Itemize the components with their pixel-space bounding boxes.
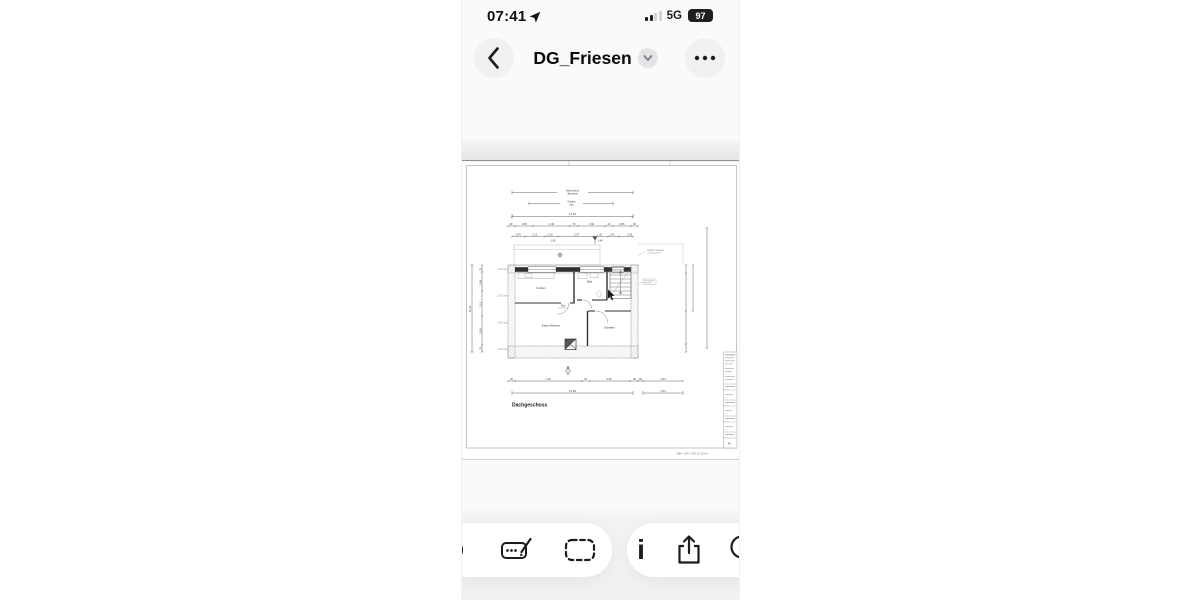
nav-bar: DG_Friesen [462,36,739,82]
status-right-cluster: 5G 97 [645,9,713,22]
paper-size-note: MB = 297 / 420 (0.12m²) [677,452,708,456]
svg-text:2.84: 2.84 [478,279,482,285]
network-type: 5G [667,10,682,22]
svg-text:73: 73 [478,347,482,350]
svg-text:30: 30 [510,377,513,381]
dim-overall-top: 12.48 [569,212,576,216]
svg-text:73: 73 [478,268,482,271]
svg-text:70: 70 [584,377,587,381]
clipped-circle-icon[interactable] [461,533,482,567]
svg-text:7.16: 7.16 [545,377,551,381]
svg-text:30: 30 [633,222,636,226]
svg-text:30: 30 [633,377,636,381]
svg-text:2.00 Linie: 2.00 Linie [497,295,508,298]
document-title-group: DG_Friesen [533,38,657,78]
annotation-garage: Auffahrt Garage [647,249,665,252]
battery-indicator: 97 [688,9,713,22]
room-label-bath: Bad [587,280,592,284]
info-icon[interactable]: i [624,533,658,567]
dim-overall-bottom: 12.48 [569,389,576,393]
room-label-bedroom: Schlafen [604,326,615,330]
svg-text:1.00 Linie: 1.00 Linie [497,268,508,271]
svg-text:2.27: 2.27 [574,232,580,236]
back-button[interactable] [474,38,514,78]
svg-text:2.84: 2.84 [478,328,482,334]
svg-text:1.13: 1.13 [532,232,538,236]
svg-text:1.64: 1.64 [515,232,521,236]
chevron-left-icon [485,45,503,71]
svg-text:i: i [637,534,645,565]
svg-text:1.00 Linie: 1.00 Linie [497,348,508,351]
drawing-title: Dachgeschoss [512,403,548,409]
svg-text:2.20: 2.20 [547,232,553,236]
ellipsis-icon [694,55,716,61]
span-label-outer-2: Bestand [568,192,578,196]
cellular-signal-icon [645,10,662,21]
location-arrow-icon [529,11,541,23]
svg-text:24: 24 [608,222,611,226]
svg-text:2.13: 2.13 [478,301,482,307]
search-icon[interactable] [727,533,740,567]
svg-text:3.90: 3.90 [589,222,595,226]
svg-text:30: 30 [510,222,513,226]
svg-text:70: 70 [573,222,576,226]
svg-text:4.54: 4.54 [660,377,666,381]
phone-screen: 07:41 5G 97 DG_Friesen [461,0,740,600]
svg-text:1.90: 1.90 [550,238,556,242]
svg-text:2.36: 2.36 [627,232,633,236]
chevron-down-icon [642,52,654,64]
svg-text:1.42: 1.42 [609,232,615,236]
svg-text:1.40: 1.40 [597,238,603,242]
svg-text:4.30: 4.30 [549,222,555,226]
dim-left-overall: 10.11 [468,305,472,312]
span-label-inner-2: neu [569,204,574,207]
svg-text:2.86: 2.86 [619,222,625,226]
svg-text:30: 30 [639,377,642,381]
svg-text:4.30: 4.30 [606,377,612,381]
svg-text:4.54: 4.54 [660,389,666,393]
title-block: M [724,352,738,448]
title-menu-button[interactable] [638,48,658,68]
share-icon[interactable] [672,533,706,567]
floor-plan-viewer[interactable]: Wohnhaus Bestand Gaube neu 12.48 30 1.98… [462,140,739,460]
screenshot-canvas: 07:41 5G 97 DG_Friesen [0,0,1200,600]
markup-icon[interactable] [500,533,534,567]
time-text: 07:41 [487,8,526,25]
status-bar: 07:41 5G 97 [462,0,739,30]
svg-text:1.20: 1.20 [597,232,603,236]
more-button[interactable] [685,38,725,78]
room-label-kitchen: Kochen [536,286,546,290]
select-area-icon[interactable] [563,533,597,567]
svg-text:2.00 Linie: 2.00 Linie [497,322,508,325]
status-time: 07:41 [487,8,541,25]
room-label-hall: Flur [561,305,565,308]
page-title: DG_Friesen [533,48,631,69]
svg-text:1.98: 1.98 [521,222,527,226]
room-label-living: Essen Wohnen [542,324,561,328]
